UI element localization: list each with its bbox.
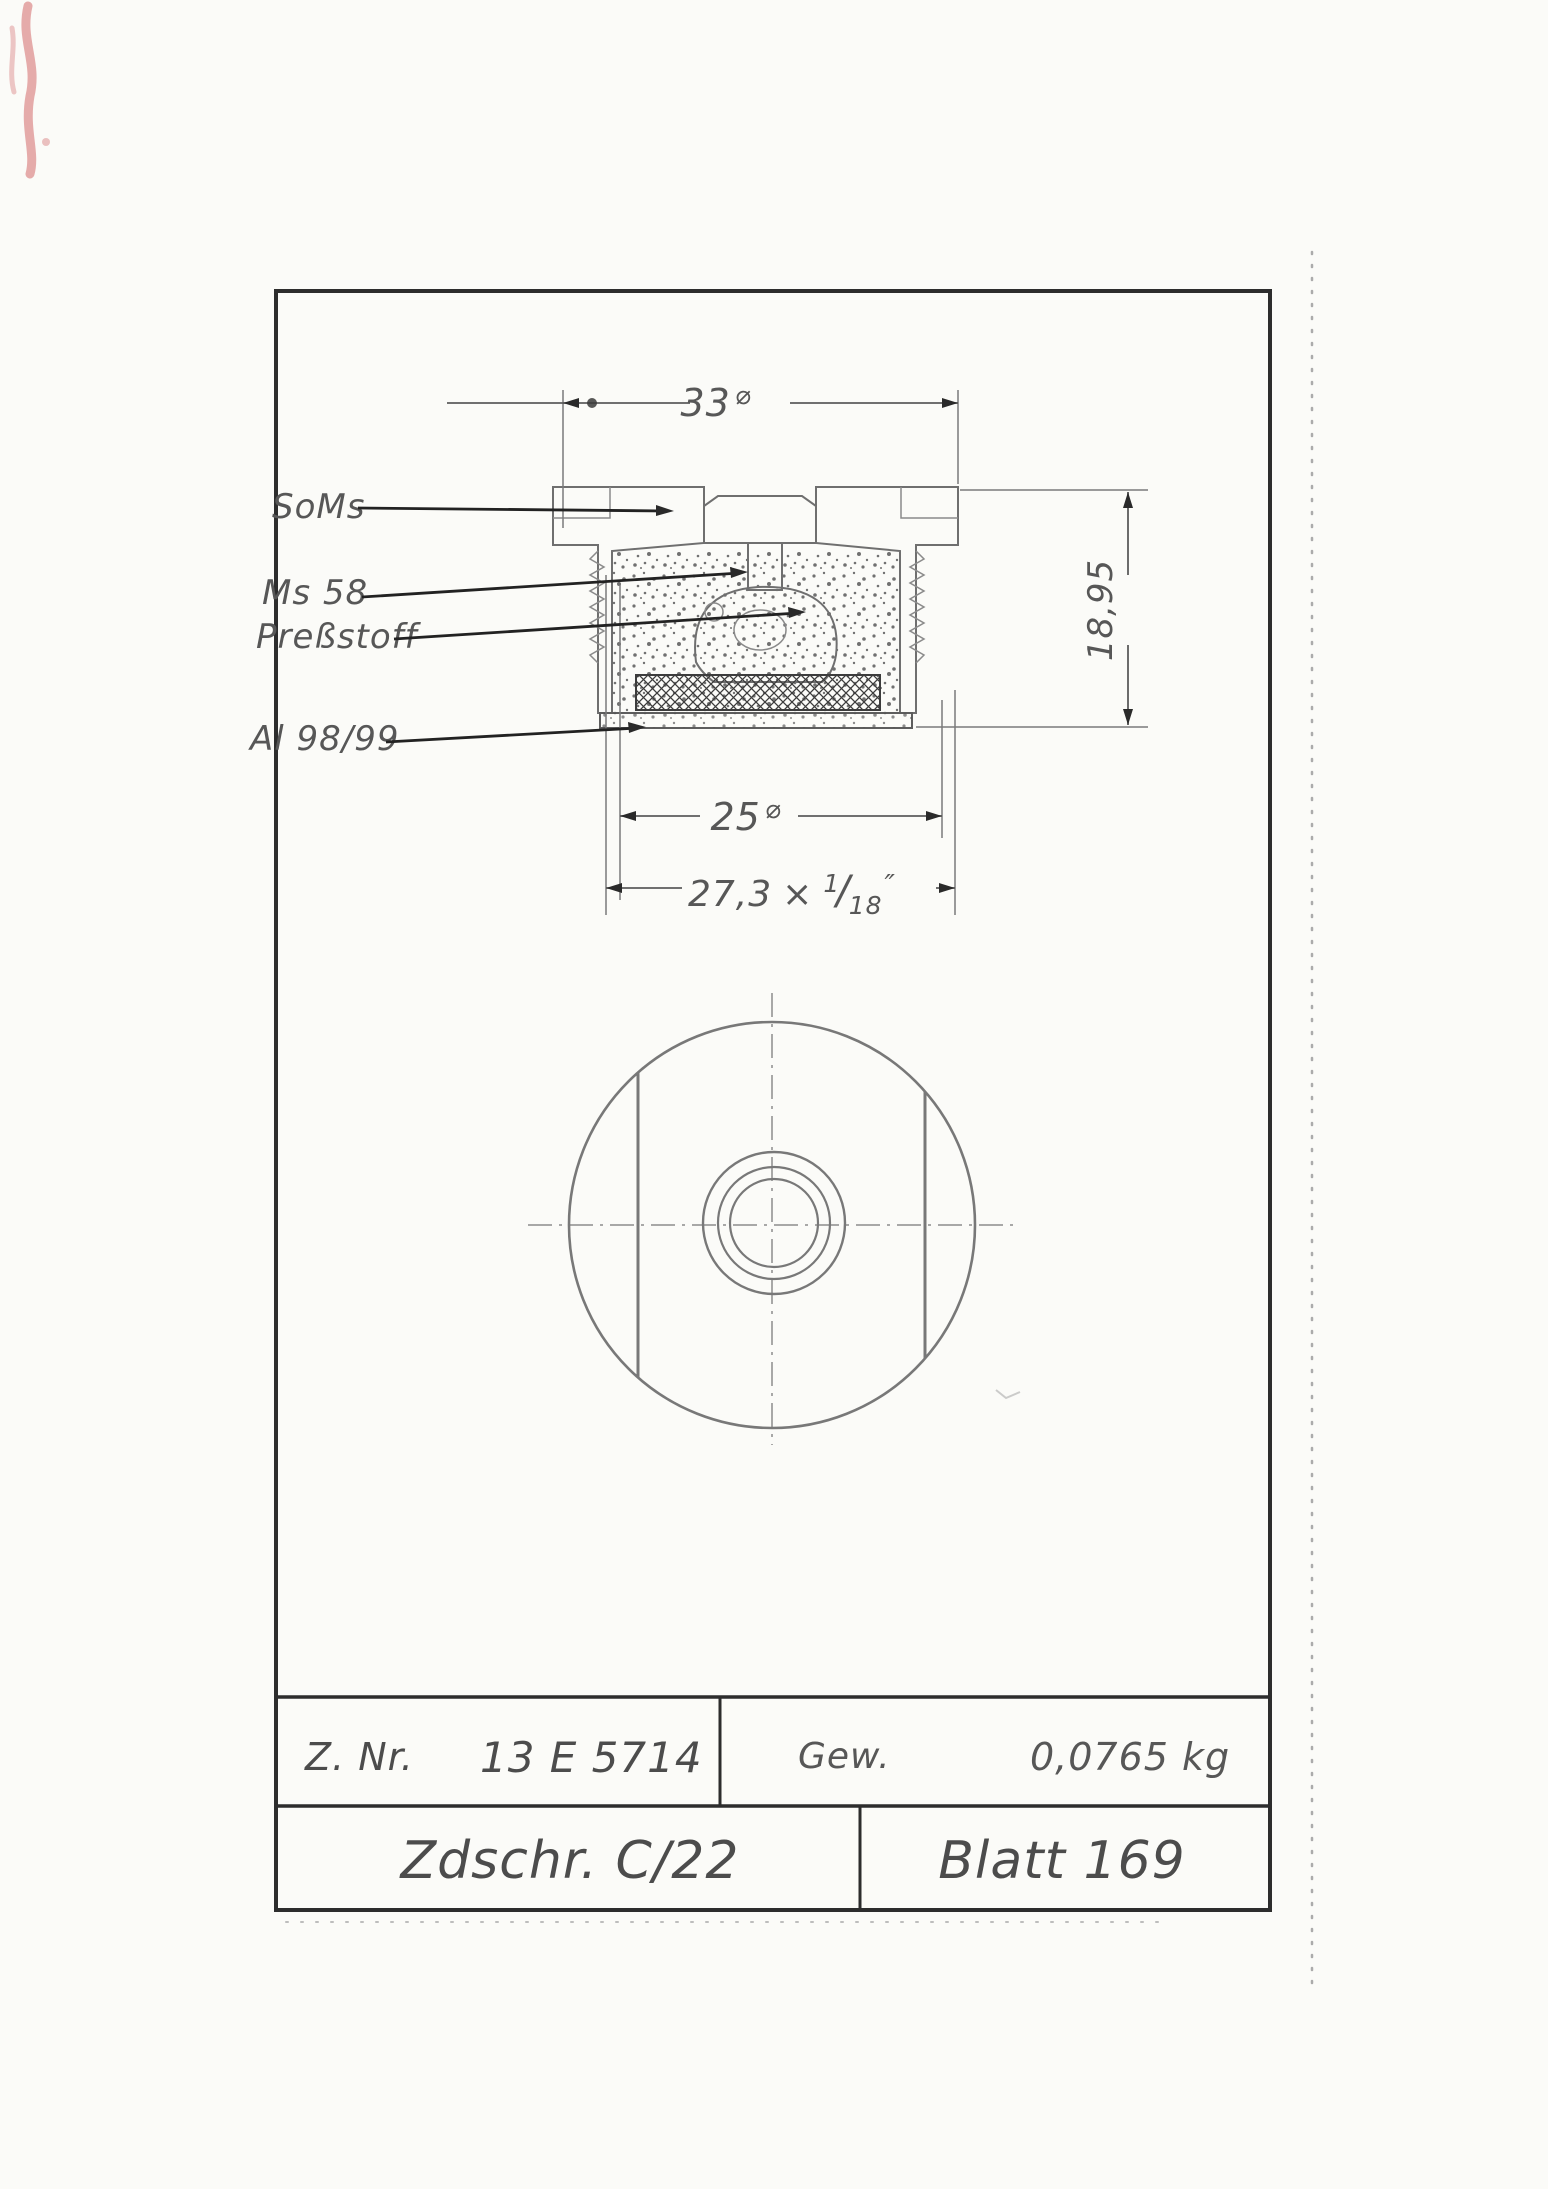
dim-33-label: 33⌀ xyxy=(680,381,751,425)
title-block: Z. Nr. 13 E 5714 Gew. 0,0765 kg Zdschr. … xyxy=(276,1697,1270,1908)
label-al9899: Al 98/99 xyxy=(248,719,400,759)
crosshatched-block xyxy=(636,675,880,710)
soms-plug xyxy=(704,496,816,543)
center-ring-inner xyxy=(730,1179,818,1267)
gew-value: 0,0765 kg xyxy=(1030,1735,1230,1779)
title-block-cell-gew: Gew. 0,0765 kg xyxy=(798,1735,1230,1779)
dimension-top-diameter: 33⌀ xyxy=(447,381,958,528)
dim-thread-label: 27,3×1/18″ xyxy=(688,868,896,920)
zdschr-value: Zdschr. C/22 xyxy=(399,1831,740,1891)
flange-corner-right xyxy=(901,487,958,518)
center-ring-outer xyxy=(703,1152,845,1294)
label-pressstoff: Preßstoff xyxy=(256,617,422,657)
center-ring-middle xyxy=(718,1167,830,1279)
blatt-value: Blatt 169 xyxy=(938,1831,1186,1891)
dim-1895-label: 18,95 xyxy=(1081,559,1121,661)
front-view xyxy=(528,993,1020,1445)
dim-25-label: 25⌀ xyxy=(710,795,781,839)
drawing-sheet: 33⌀ 18,95 25⌀ xyxy=(0,0,1548,2189)
znr-label: Z. Nr. xyxy=(304,1735,414,1779)
stray-pencil-mark xyxy=(996,1390,1020,1398)
dimension-height: 18,95 xyxy=(916,490,1148,727)
label-soms: SoMs xyxy=(272,487,365,527)
gew-label: Gew. xyxy=(798,1736,891,1777)
title-block-cell-blatt: Blatt 169 xyxy=(938,1831,1186,1891)
title-block-cell-znr: Z. Nr. 13 E 5714 xyxy=(304,1733,703,1782)
red-dot xyxy=(42,138,50,146)
title-block-cell-zdschr: Zdschr. C/22 xyxy=(399,1831,740,1891)
section-view: 33⌀ 18,95 25⌀ xyxy=(248,381,1148,920)
dimension-thread: 27,3×1/18″ xyxy=(606,868,955,920)
ink-blob xyxy=(587,398,597,408)
aluminium-plate-texture xyxy=(600,713,912,728)
scan-artifact-red-marks xyxy=(12,6,50,174)
znr-value: 13 E 5714 xyxy=(480,1733,703,1782)
scanned-drawing-page: 33⌀ 18,95 25⌀ xyxy=(0,0,1548,2189)
drawing-frame xyxy=(276,291,1270,1910)
label-ms58: Ms 58 xyxy=(262,573,368,613)
flange-corner-left xyxy=(553,487,610,518)
